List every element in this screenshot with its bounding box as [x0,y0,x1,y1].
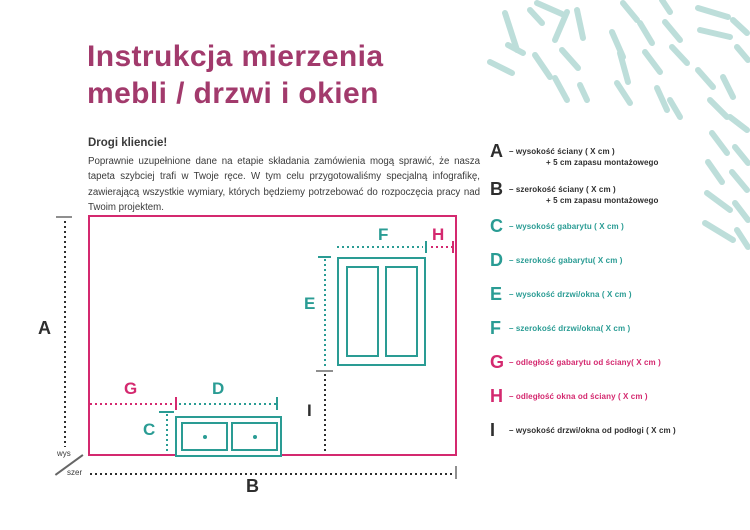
window-shape [337,257,426,366]
legend-text: – szerokość ściany ( X cm ) [509,185,616,194]
legend-letter-d: D [490,253,504,268]
legend-item-g: G – odległość gabarytu od ściany( X cm ) [490,355,661,370]
b-right-tick [455,466,457,479]
legend-text: – szerokość gabarytu( X cm ) [509,253,623,268]
f-measure-line [337,246,423,248]
c-measure-line [166,414,168,454]
legend-letter-a: A [490,144,504,168]
legend-letter-e: E [490,287,504,302]
legend-item-b: B – szerokość ściany ( X cm ) + 5 cm zap… [490,182,659,206]
d-measure-line [179,403,276,405]
f-right-tick [425,241,427,253]
legend-letter-b: B [490,182,504,206]
label-g: G [124,380,137,397]
legend-text-2: + 5 cm zapasu montażowego [509,157,659,168]
legend-letter-f: F [490,321,504,336]
a-top-tick [56,216,72,218]
cabinet-door-right [231,422,278,451]
cabinet-door-left [181,422,228,451]
legend-text: – szerokość drzwi/okna( X cm ) [509,321,630,336]
legend-letter-i: I [490,423,504,438]
label-c: C [143,421,155,438]
door-knob [253,435,257,439]
label-b: B [246,478,259,495]
door-knob [203,435,207,439]
legend-text: – wysokość drzwi/okna ( X cm ) [509,287,632,302]
legend-item-c: C – wysokość gabarytu ( X cm ) [490,219,624,234]
legend-item-d: D – szerokość gabarytu( X cm ) [490,253,623,268]
h-right-tick [452,241,454,253]
axis-width-label: szer [67,468,82,477]
legend-text-2: + 5 cm zapasu montażowego [509,195,659,206]
legend-letter-c: C [490,219,504,234]
label-a: A [38,320,51,337]
a-measure-line [64,221,66,447]
infographic-page: Instrukcja mierzenia mebli / drzwi i oki… [0,0,750,530]
legend-text: – odległość gabarytu od ściany( X cm ) [509,355,661,370]
window-pane-left [346,266,379,357]
intro-paragraph: Poprawnie uzupełnione dane na etapie skł… [88,154,480,216]
legend-item-e: E – wysokość drzwi/okna ( X cm ) [490,287,632,302]
c-top-tick [159,411,174,413]
g-right-tick [175,397,177,410]
greeting: Drogi kliencie! [88,137,167,149]
window-pane-right [385,266,418,357]
label-f: F [378,226,388,243]
cabinet-shape [175,416,282,457]
legend-text: – wysokość gabarytu ( X cm ) [509,219,624,234]
legend-item-i: I – wysokość drzwi/okna od podłogi ( X c… [490,423,676,438]
legend-letter-g: G [490,355,504,370]
b-measure-line [90,473,455,475]
e-bottom-tick [316,370,333,372]
e-measure-line [324,259,326,368]
legend-text: – odległość okna od ściany ( X cm ) [509,389,648,404]
legend-text: – wysokość ściany ( X cm ) [509,147,615,156]
h-measure-line [431,246,452,248]
i-measure-line [324,374,326,452]
page-title: Instrukcja mierzenia mebli / drzwi i oki… [87,38,383,112]
d-right-tick [276,397,278,410]
legend-letter-h: H [490,389,504,404]
legend-item-h: H – odległość okna od ściany ( X cm ) [490,389,648,404]
label-i: I [307,402,312,419]
g-measure-line [90,403,175,405]
e-top-tick [318,256,331,258]
label-e: E [304,295,315,312]
axis-height-label: wys [57,449,71,458]
label-d: D [212,380,224,397]
legend-item-f: F – szerokość drzwi/okna( X cm ) [490,321,630,336]
label-h: H [432,226,444,243]
legend-text: – wysokość drzwi/okna od podłogi ( X cm … [509,423,676,438]
legend-item-a: A – wysokość ściany ( X cm ) + 5 cm zapa… [490,144,659,168]
